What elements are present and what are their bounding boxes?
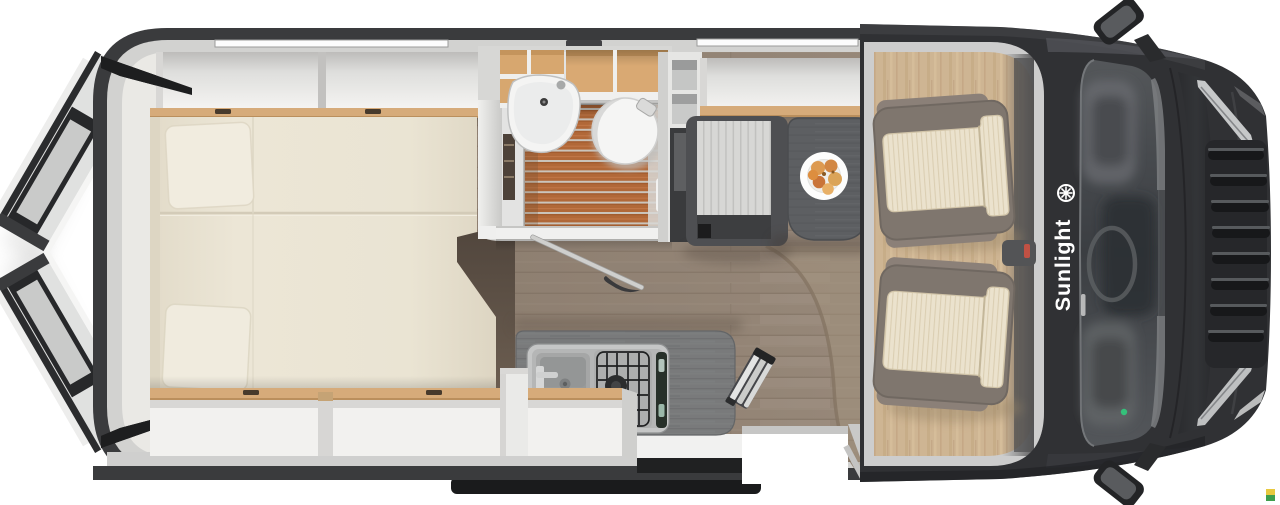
svg-text:Sunlight: Sunlight	[1051, 219, 1075, 311]
